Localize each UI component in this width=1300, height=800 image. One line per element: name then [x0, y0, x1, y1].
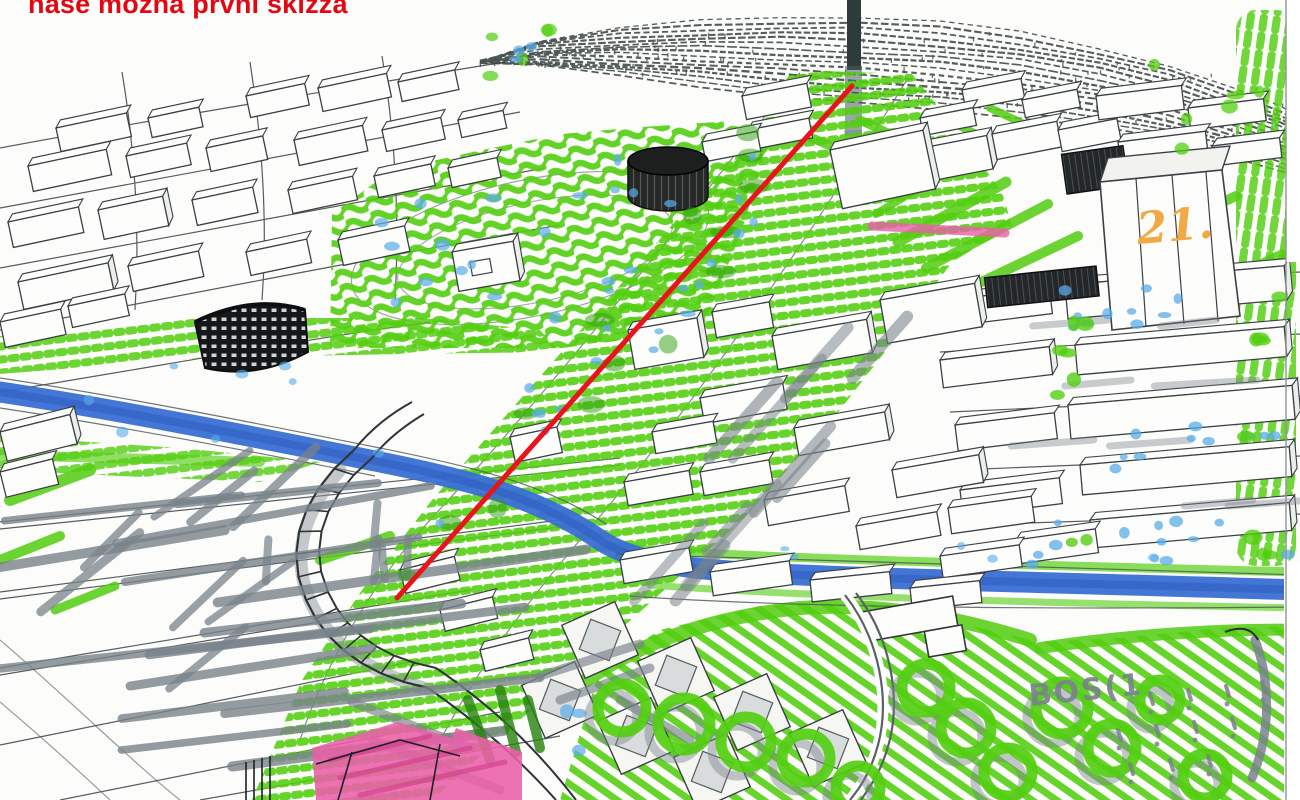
urban-sketch: naše možná první skizza 21. BOS(1	[0, 0, 1300, 800]
sketch-title: naše možná první skizza	[28, 0, 348, 19]
building-21-label: 21.	[1134, 197, 1216, 255]
sketch-page: naše možná první skizza 21. BOS(1	[0, 0, 1300, 800]
